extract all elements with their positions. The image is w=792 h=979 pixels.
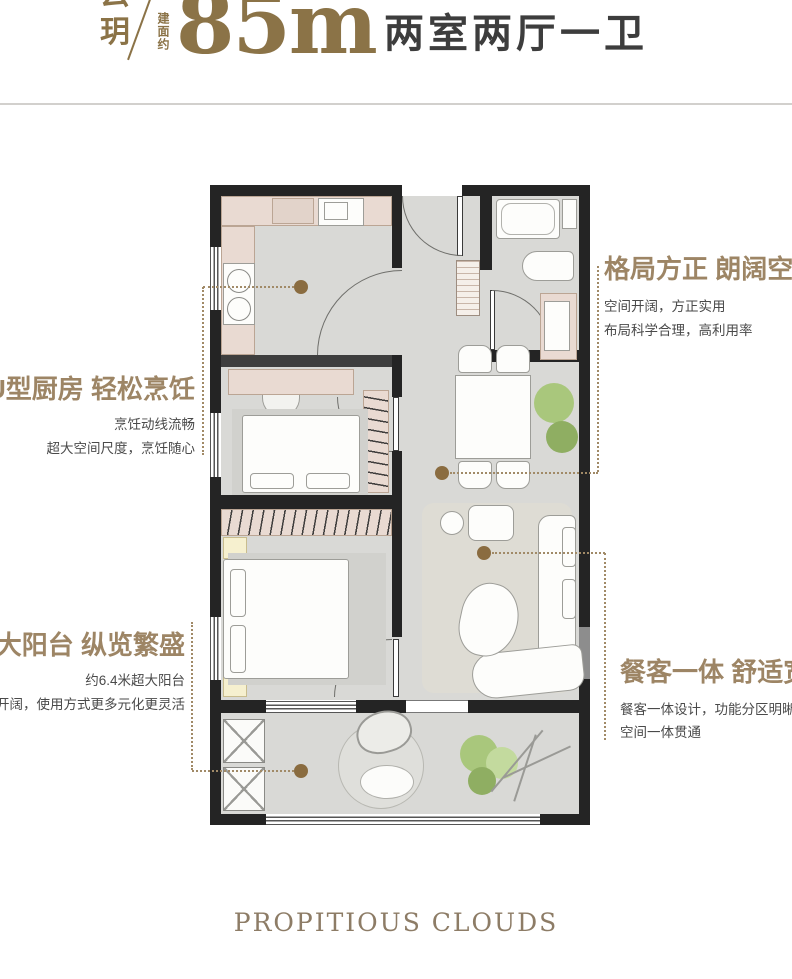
structure-dot (435, 466, 449, 480)
window (210, 617, 221, 680)
sofa-cushion-icon (562, 579, 576, 619)
wall-segment (579, 185, 590, 627)
wall-segment (210, 477, 221, 617)
annotation-structure: 格局方正 朗阔空间 空间开阔，方正实用 布局科学合理，高利用率 (604, 252, 792, 339)
wall-segment (210, 185, 402, 196)
layout-summary: 两室两厅一卫 (384, 1, 648, 59)
annotation-balcony: 超大阳台 纵览繁盛 约6.4米超大阳台 空间开阔，使用方式更多元化更灵活 (0, 628, 185, 713)
footer-brand-en: PROPITIOUS CLOUDS (0, 908, 792, 937)
window (210, 413, 221, 477)
annotation-line: 空间开阔，方正实用 (604, 298, 792, 315)
floor-plan (210, 185, 590, 825)
brand-logo: 云 玥 (94, 0, 136, 52)
leader-line (191, 622, 193, 770)
stove-burner-icon (227, 297, 251, 321)
bedroom-divider-wall (221, 495, 392, 509)
wall-segment (392, 196, 402, 268)
annotation-kitchen: U型厨房 轻松烹饪 烹饪动线流畅 超大空间尺度，烹饪随心 (0, 372, 195, 457)
plant-icon (546, 421, 578, 453)
water-heater-icon (562, 199, 577, 229)
living-dot (477, 546, 491, 560)
wall-segment (392, 451, 402, 637)
annotation-line: 空间开阔，使用方式更多元化更灵活 (0, 696, 185, 713)
kitchen-divider-wall (221, 355, 402, 367)
leader-line (492, 552, 605, 554)
balcony-window (266, 814, 540, 825)
annotation-title: 餐客一体 舒适宽 (620, 655, 792, 689)
bedroom2-desk (228, 369, 354, 395)
oval-table-icon (360, 765, 414, 799)
balcony-divider-wall (221, 700, 266, 713)
annotation-line: 布局科学合理，高利用率 (604, 322, 792, 339)
wall-segment (210, 185, 221, 247)
annotation-line: 空间一体贯通 (620, 724, 792, 741)
balcony-sliding-opening (406, 700, 468, 713)
accent-chair-icon (468, 505, 514, 541)
master-door-leaf (393, 639, 399, 697)
annotation-line: 餐客一体设计，功能分区明晰 (620, 701, 792, 718)
annotation-title: U型厨房 轻松烹饪 (0, 372, 195, 406)
wall-segment (210, 814, 266, 825)
balcony-dot (294, 764, 308, 778)
bathroom-wall (480, 196, 492, 270)
dining-chair-icon (458, 461, 492, 489)
annotation-line: 烹饪动线流畅 (0, 416, 195, 433)
washer-icon (223, 719, 265, 763)
annotation-line: 约6.4米超大阳台 (0, 672, 185, 689)
wall-segment (540, 814, 590, 825)
dining-table-icon (455, 375, 531, 459)
area-prefix-label: 建面约 (155, 12, 170, 51)
annotation-line: 超大空间尺度，烹饪随心 (0, 440, 195, 457)
wall-segment (462, 185, 590, 196)
side-table-icon (440, 511, 464, 535)
brand-char-bottom: 玥 (94, 14, 136, 52)
area-value: 85m (176, 0, 376, 73)
leader-line (192, 770, 294, 772)
dryer-icon (223, 767, 265, 811)
dining-chair-icon (496, 345, 530, 373)
window (266, 700, 356, 713)
sofa-cushion-icon (562, 527, 576, 567)
floorplan-page: 云 玥 建面约 85m 两室两厅一卫 (0, 0, 792, 979)
plant-icon (534, 383, 574, 423)
stove-burner-icon (227, 269, 251, 293)
wall-segment (579, 679, 590, 825)
bedroom2-door-leaf (393, 397, 399, 451)
wall-segment (210, 310, 221, 413)
wall-segment (210, 680, 221, 825)
kitchen-cutting-board (272, 198, 314, 224)
header-divider (0, 103, 792, 105)
kitchen-dot (294, 280, 308, 294)
annotation-title: 格局方正 朗阔空间 (604, 252, 792, 286)
pillow-icon (306, 473, 350, 489)
pillow-icon (250, 473, 294, 489)
wall-segment (392, 355, 402, 397)
leader-line (597, 266, 599, 472)
annotation-title: 超大阳台 纵览繁盛 (0, 628, 185, 662)
dining-chair-icon (458, 345, 492, 373)
balcony-divider-wall (468, 700, 579, 713)
bathtub-inner (501, 203, 555, 235)
dining-chair-icon (496, 461, 530, 489)
annotation-dining: 餐客一体 舒适宽 餐客一体设计，功能分区明晰 空间一体贯通 (620, 655, 792, 741)
toilet-icon (522, 251, 574, 281)
brand-char-top: 云 (94, 0, 136, 14)
pillow-icon (230, 569, 246, 617)
pillow-icon (230, 625, 246, 673)
kitchen-sink-basin (324, 202, 348, 220)
leader-line (203, 286, 294, 288)
leader-line (604, 553, 606, 740)
leader-line (202, 287, 204, 455)
leader-line (450, 472, 598, 474)
shoe-cabinet (456, 260, 480, 316)
vanity-sink-icon (544, 301, 570, 351)
master-wardrobe (221, 509, 392, 536)
window (210, 247, 221, 310)
